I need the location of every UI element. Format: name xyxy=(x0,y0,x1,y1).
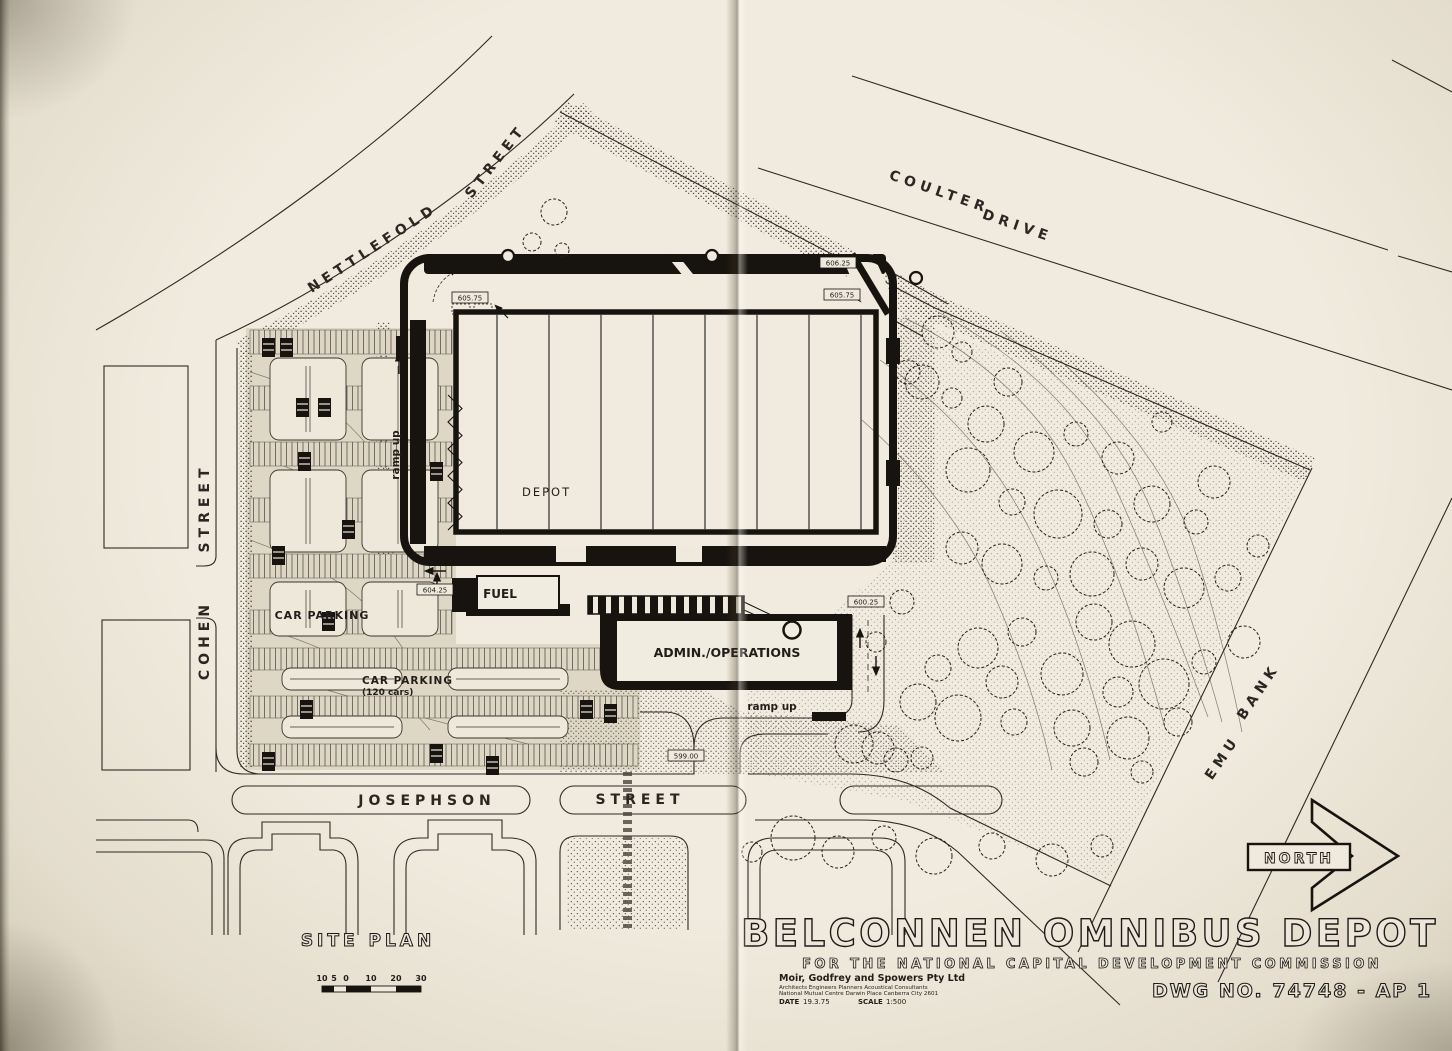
street-label-josephson-suffix: STREET xyxy=(595,792,684,808)
scale-tick: 30 xyxy=(415,974,427,983)
street-label-josephson: JOSEPHSON xyxy=(357,793,495,809)
scale-tick: 0 xyxy=(343,974,349,983)
street-label-cohen: COHEN xyxy=(197,600,213,680)
level-fuel: 604.25 xyxy=(423,587,448,595)
street-label-cohen-suffix: STREET xyxy=(197,463,213,552)
car-parking-capacity-label: (120 cars) xyxy=(362,688,413,698)
scale-tick: 5 xyxy=(331,974,337,983)
dwg-number: DWG NO. 74748 - AP 1 xyxy=(1152,980,1432,1002)
scale-tick: 20 xyxy=(390,974,402,983)
north-arrow: NORTH xyxy=(1248,800,1398,910)
title-block: BELCONNEN OMNIBUS DEPOT FOR THE NATIONAL… xyxy=(741,912,1439,1006)
date-label: DATE xyxy=(779,998,799,1006)
street-label-coulter-suffix: DRIVE xyxy=(980,207,1054,246)
car-parking-west-label: CAR PARKING xyxy=(275,609,370,622)
date-value: 19.3.75 xyxy=(803,998,830,1006)
scale-label: SCALE xyxy=(858,998,883,1006)
level-ramp-east: 600.25 xyxy=(854,599,879,607)
firm-name: Moir, Godfrey and Spowers Pty Ltd xyxy=(779,973,965,984)
street-label-coulter: COULTER xyxy=(887,168,992,217)
scale-tick: 10 xyxy=(316,974,328,983)
scanned-site-plan-page: 605.75 606.25 605.75 604.25 600.25 599.0… xyxy=(0,0,1452,1051)
admin-label: ADMIN./OPERATIONS xyxy=(654,645,801,660)
firm-address: National Mutual Centre Darwin Place Canb… xyxy=(779,991,939,997)
level-ne: 605.75 xyxy=(830,292,855,300)
scale-value: 1:500 xyxy=(886,998,906,1006)
drawing-title: BELCONNEN OMNIBUS DEPOT xyxy=(741,912,1439,955)
plan-label: SITE PLAN xyxy=(301,931,435,951)
plan-title-area: SITE PLAN 10 5 0 10 20 30 xyxy=(301,931,435,992)
depot-label: DEPOT xyxy=(522,485,571,499)
level-ne-upper: 606.25 xyxy=(826,260,851,268)
drawing-subtitle: FOR THE NATIONAL CAPITAL DEVELOPMENT COM… xyxy=(802,957,1382,972)
ramp-up-south-label: ramp up xyxy=(747,701,797,713)
fuel-label: FUEL xyxy=(483,587,517,601)
scale-bar: 10 5 0 10 20 30 xyxy=(316,974,427,992)
scale-tick: 10 xyxy=(365,974,377,983)
street-label-emu: EMU xyxy=(1202,733,1243,783)
north-label: NORTH xyxy=(1264,851,1334,867)
level-nw: 605.75 xyxy=(458,295,483,303)
level-south-entry: 599.00 xyxy=(674,753,699,761)
site-plan-drawing: 605.75 606.25 605.75 604.25 600.25 599.0… xyxy=(0,0,1452,1051)
ramp-up-west-label: ramp up xyxy=(390,430,402,480)
street-label-emu-suffix: BANK xyxy=(1234,661,1283,723)
car-parking-south-label: CAR PARKING xyxy=(362,675,453,687)
